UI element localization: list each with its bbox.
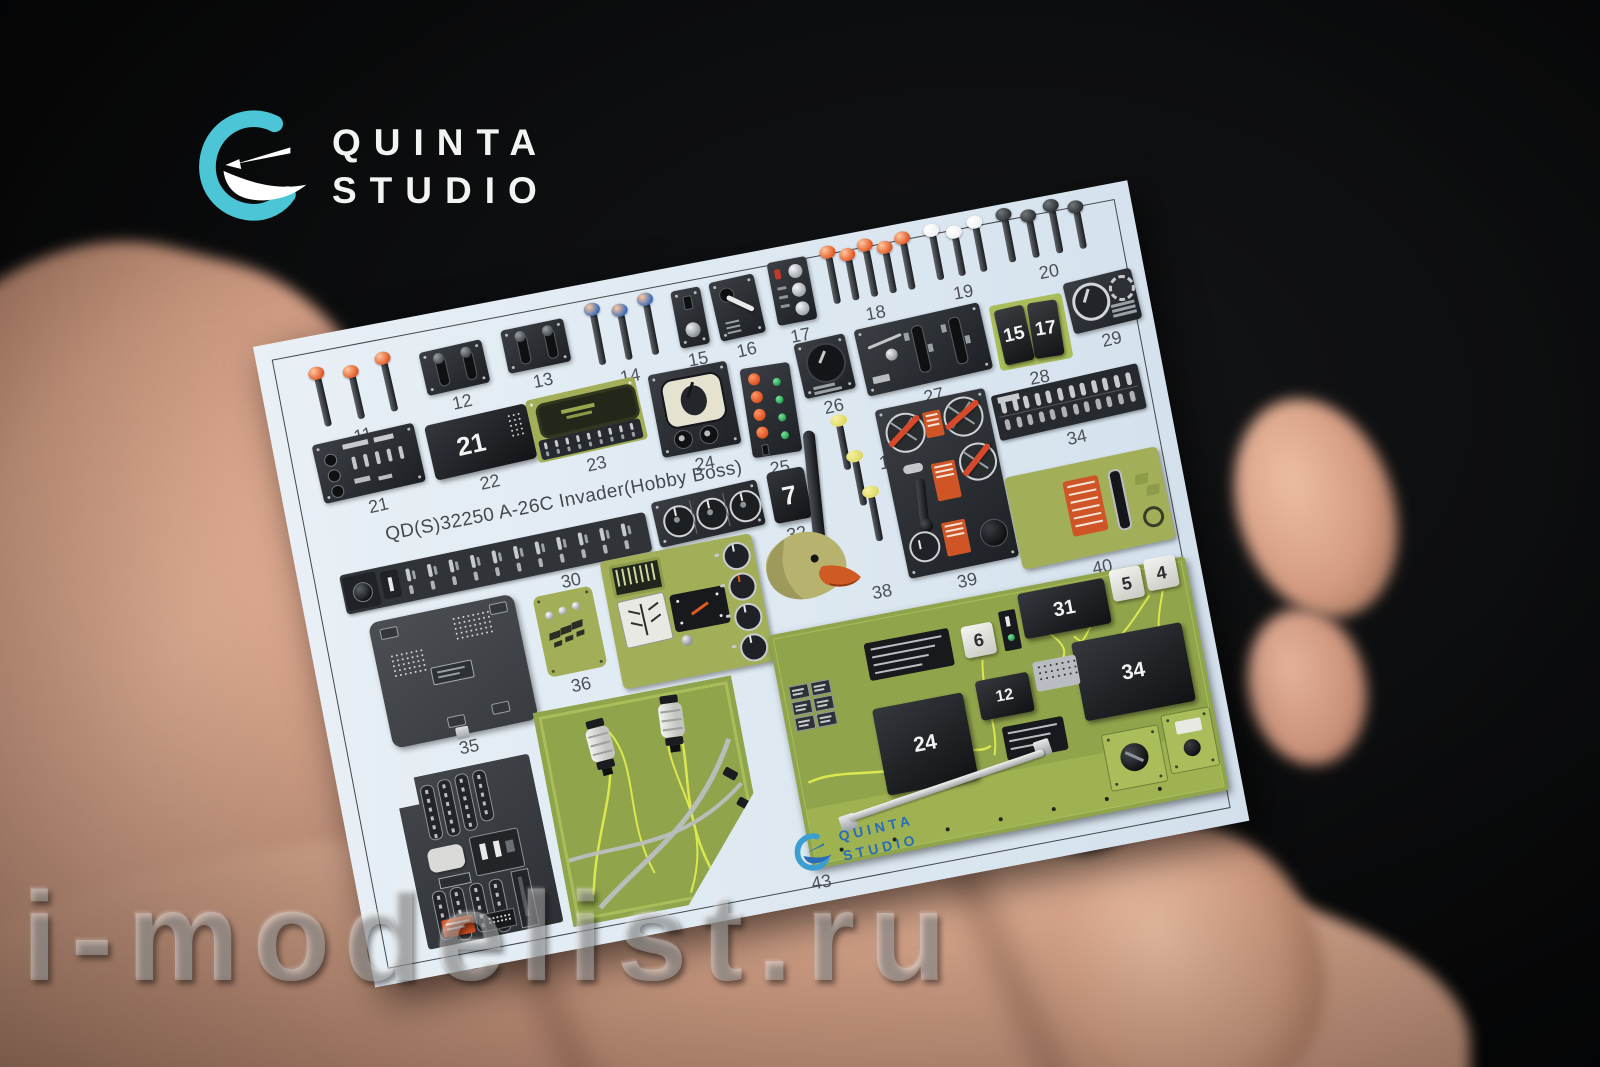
- toggle-pill: [588, 441, 592, 447]
- toggle-pill: [452, 576, 458, 586]
- spool-ridge: [661, 718, 681, 722]
- toggle-pill: [470, 555, 477, 569]
- screw-dot: [1175, 765, 1179, 769]
- toggle-pill: [1027, 414, 1034, 426]
- toggle-pill: [374, 451, 381, 465]
- screw-dot: [758, 518, 762, 522]
- toggle-pill: [513, 546, 520, 560]
- lever-stem: [972, 226, 987, 272]
- toggle-pill: [1023, 395, 1031, 409]
- grille-slat: [645, 564, 650, 581]
- lever-stem: [929, 234, 944, 280]
- screw-dot: [551, 670, 555, 674]
- toggle-pill: [627, 525, 632, 534]
- lever-cap: [636, 291, 654, 307]
- lever-cap: [875, 240, 893, 256]
- watermark-text: i-modelist.ru: [22, 864, 1582, 1009]
- mini-toggle: [761, 444, 770, 456]
- placard-line: [798, 719, 810, 723]
- screw-dot: [663, 540, 667, 544]
- toggle-pill: [631, 431, 635, 437]
- screw-dot: [750, 484, 754, 488]
- orange-placard: [1062, 475, 1109, 537]
- tree-branch: [651, 613, 662, 622]
- toggle-pill: [519, 548, 524, 557]
- screw-dot: [505, 333, 509, 337]
- lever-cap: [1042, 198, 1060, 214]
- quinta-studio-logo: QUINTA STUDIO: [196, 108, 550, 226]
- screw-dot: [798, 347, 802, 351]
- red-toggle: [774, 269, 782, 280]
- dark-glyph: [561, 624, 572, 635]
- orange-placard: [922, 409, 945, 438]
- screw-dot: [684, 341, 688, 345]
- screw-dot: [475, 344, 479, 348]
- toggle-pill: [433, 566, 438, 575]
- toggle-pill: [577, 532, 584, 546]
- placard-line: [437, 666, 465, 674]
- toggle-pill: [620, 523, 627, 537]
- part-32: 732: [766, 466, 813, 524]
- toggle-pill: [576, 435, 580, 442]
- lever-stem: [845, 258, 860, 301]
- spool-body: [657, 702, 685, 739]
- screw-dot: [724, 334, 728, 338]
- grille-slat: [621, 569, 626, 586]
- lever-stem: [882, 251, 897, 294]
- wire-silver: [867, 333, 901, 350]
- toggle-pill: [1038, 411, 1045, 423]
- silver-button: [787, 263, 803, 279]
- toggle-pill: [1015, 416, 1022, 428]
- toggle-pill: [621, 434, 625, 440]
- screw-dot: [675, 294, 679, 298]
- screw-dot: [557, 323, 561, 327]
- screw-dot: [1011, 550, 1015, 554]
- placard-dash: [427, 799, 431, 804]
- screw-dot: [666, 450, 670, 454]
- placard-bar: [354, 475, 371, 483]
- placard-line: [792, 688, 804, 692]
- tick-dot: [680, 621, 684, 625]
- screw-dot: [652, 378, 656, 382]
- placard-line: [817, 704, 827, 707]
- spool-ridge: [590, 740, 610, 747]
- gauge-face: [802, 339, 850, 387]
- screw-dot: [693, 291, 697, 295]
- green-light: [1007, 633, 1015, 641]
- tree-branch: [631, 622, 643, 626]
- screw-dot: [1107, 738, 1111, 742]
- toggle-pill: [1056, 387, 1064, 401]
- toggle-pill: [427, 564, 434, 578]
- part-18: 18: [816, 230, 918, 308]
- placard-line: [1067, 481, 1095, 489]
- white-lever: [726, 295, 755, 312]
- lever-cap: [965, 214, 983, 230]
- knob-box: [342, 571, 382, 611]
- toggle-pill: [516, 562, 522, 572]
- placard-dash: [484, 810, 488, 815]
- screw-dot: [838, 338, 842, 342]
- toggle-pill: [1000, 400, 1008, 414]
- screw-dot: [972, 307, 976, 311]
- lever-stem: [1073, 211, 1087, 250]
- mini-plate: [488, 601, 508, 615]
- toggle-pill: [605, 530, 610, 539]
- toggle-pill: [1045, 390, 1053, 404]
- screw-dot: [1211, 758, 1215, 762]
- toggle-pill: [567, 446, 571, 452]
- part-20: 20: [992, 194, 1089, 267]
- lever-cap: [893, 230, 911, 246]
- screw-dot: [879, 413, 883, 417]
- placard-dash: [448, 811, 452, 816]
- toggle-pill: [1072, 403, 1079, 415]
- placard-line: [936, 473, 954, 478]
- toggle-pill: [597, 430, 601, 437]
- toggle-pill: [1004, 419, 1011, 431]
- tick-dot: [719, 614, 723, 618]
- toggle-pill: [1124, 372, 1132, 386]
- placard-dash: [467, 814, 471, 819]
- green-light: [778, 413, 787, 422]
- screw-dot: [985, 362, 989, 366]
- toggle-pill: [565, 437, 569, 444]
- silver-dot: [558, 606, 567, 615]
- part-28: 151728: [988, 293, 1073, 372]
- placard-dash: [434, 834, 438, 839]
- toggle-pill: [386, 448, 393, 462]
- part-26: 26: [793, 333, 856, 399]
- toggle-pill: [1106, 396, 1113, 408]
- part-16: 16: [708, 273, 766, 342]
- placard-line: [795, 704, 807, 708]
- key-number: 4: [1143, 554, 1180, 591]
- toggle-pill: [619, 425, 623, 432]
- part-12: 12: [418, 339, 490, 396]
- part-38: 38: [749, 518, 867, 620]
- placard-line: [799, 724, 809, 727]
- toggle-pill: [599, 439, 603, 445]
- lever-stem: [825, 256, 841, 304]
- orange-placard: [941, 519, 971, 557]
- part-15: 15: [670, 286, 710, 349]
- side-tab: [964, 335, 971, 344]
- screw-dot: [912, 571, 916, 575]
- round-knob: [977, 516, 1010, 549]
- part-36: 36: [532, 585, 608, 678]
- placard-line: [438, 672, 460, 678]
- toggle-pill: [351, 456, 358, 470]
- green-tab: [1147, 483, 1160, 496]
- toggle-pill: [1090, 380, 1098, 394]
- toggle-pill: [1079, 382, 1087, 396]
- screw-dot: [720, 365, 724, 369]
- placard-dash: [477, 775, 481, 780]
- placard-dash: [442, 784, 446, 789]
- t-handle: [916, 478, 929, 523]
- dark-glyph: [565, 635, 573, 643]
- toggle-pill: [581, 549, 587, 559]
- grille-slat: [615, 570, 620, 587]
- grille-slat: [633, 566, 638, 583]
- placard-bar: [781, 304, 790, 309]
- toggle-pill: [629, 423, 633, 430]
- toggle-pill: [608, 428, 612, 435]
- silver-button: [794, 300, 810, 316]
- screw-dot: [511, 366, 515, 370]
- toggle-pill: [476, 557, 481, 566]
- spool-ridge: [663, 727, 683, 731]
- screw-dot: [733, 437, 737, 441]
- screw-dot: [808, 391, 812, 395]
- placard-bar: [342, 439, 368, 450]
- lever-cap: [341, 363, 359, 379]
- toggle-pill: [556, 537, 563, 551]
- lever-stem: [643, 303, 660, 355]
- placard-bar: [872, 374, 890, 385]
- toggle-pill: [409, 585, 415, 595]
- placard-line: [1074, 512, 1102, 520]
- mini-toggle: [682, 295, 693, 310]
- brand-wordmark: QUINTA STUDIO: [332, 119, 550, 215]
- toggle-pill: [491, 550, 498, 564]
- lever-stem: [314, 377, 332, 427]
- placard-dash: [449, 819, 453, 824]
- knob: [326, 468, 342, 484]
- toggle-pill: [599, 528, 606, 542]
- key-number: 5: [1108, 565, 1145, 602]
- black-knob: [1182, 738, 1202, 758]
- lever-stem: [1026, 220, 1040, 259]
- toggle-pill: [448, 559, 455, 573]
- placard-line: [820, 719, 830, 722]
- placard-line: [925, 413, 937, 417]
- screw-dot: [702, 337, 706, 341]
- placard-dash: [446, 802, 450, 807]
- toggle-pill: [1117, 393, 1124, 405]
- green-light: [775, 395, 784, 404]
- mini-plate: [379, 626, 399, 640]
- gauge-center: [678, 383, 709, 417]
- placard-bar: [777, 286, 786, 291]
- dial-face: [732, 601, 765, 634]
- placard-dash: [469, 823, 473, 828]
- placard-line: [875, 663, 923, 674]
- part-13: 13: [500, 318, 572, 374]
- toggle-pill: [554, 440, 558, 447]
- toggle-pill: [584, 534, 589, 543]
- white-switch: [493, 840, 502, 857]
- lever-stem: [349, 375, 366, 419]
- toggle-pill: [731, 645, 736, 649]
- placard-line: [945, 527, 963, 532]
- toggle-pill: [1068, 385, 1076, 399]
- part-label-38: 38: [870, 580, 894, 604]
- placard-line: [816, 699, 828, 703]
- placard-dash: [451, 828, 455, 833]
- silver-ball: [885, 347, 899, 361]
- orange-button: [755, 426, 769, 440]
- toggle-pill: [610, 436, 614, 442]
- part-35: 35: [368, 593, 539, 749]
- lever-cap: [945, 224, 963, 240]
- orange-button: [750, 390, 764, 404]
- screw-dot: [871, 388, 875, 392]
- lever-cap: [373, 350, 391, 366]
- placard-dash: [459, 778, 463, 783]
- lever-cap: [583, 301, 601, 317]
- placard-line: [1070, 496, 1098, 504]
- dial-face: [720, 540, 753, 573]
- screw-dot: [655, 506, 659, 510]
- knob: [323, 452, 339, 468]
- placard-line: [813, 684, 825, 688]
- lever-cap: [307, 365, 325, 381]
- silver-button: [791, 281, 807, 297]
- spool-plug: [670, 744, 681, 752]
- white-placard: [1175, 717, 1203, 735]
- duck-head-grip-graphic: [749, 518, 867, 620]
- placard-line: [935, 468, 953, 473]
- toggle-pill: [1034, 393, 1042, 407]
- placard-dash: [461, 787, 465, 792]
- lever-cap: [922, 222, 940, 238]
- screw-dot: [1159, 774, 1163, 778]
- spool-ridge: [660, 709, 680, 713]
- toggle-pill: [538, 558, 544, 568]
- lever-stem: [900, 242, 916, 290]
- lever-stem: [1049, 209, 1064, 254]
- sub-panel: [1101, 724, 1169, 792]
- screw-dot: [978, 393, 982, 397]
- screw-dot: [418, 475, 422, 479]
- toggle-pill: [430, 580, 436, 590]
- lever-cap: [829, 413, 848, 428]
- part-label-16: 16: [722, 335, 772, 366]
- screw-dot: [537, 600, 541, 604]
- toggle-pill: [562, 539, 567, 548]
- lever-stem: [952, 236, 966, 277]
- side-tab: [940, 324, 947, 333]
- silver-dot: [571, 601, 580, 610]
- screw-dot: [858, 333, 862, 337]
- placard-bar: [378, 474, 393, 481]
- white-placard: [616, 592, 673, 649]
- placard-line: [934, 463, 952, 468]
- dark-glyph: [549, 630, 560, 641]
- placard-dash: [432, 825, 436, 830]
- lever-cap: [856, 237, 874, 253]
- silver-knob: [684, 321, 702, 339]
- white-switch: [479, 843, 488, 860]
- screw-dot: [585, 590, 589, 594]
- placard-dash: [444, 793, 448, 798]
- lever-stem: [852, 459, 867, 505]
- placard-bar: [779, 295, 788, 300]
- grille-slat: [627, 567, 632, 584]
- grille-slat: [651, 563, 656, 580]
- placard-dash: [479, 784, 483, 789]
- placard-bar: [373, 433, 394, 442]
- part-24: 24: [647, 361, 741, 459]
- equipment-number: 7: [766, 466, 813, 524]
- placard-line: [1075, 520, 1103, 528]
- key-6: 6: [960, 621, 997, 658]
- toggle-pill: [405, 568, 412, 582]
- key-number: 6: [960, 621, 997, 658]
- photo-scene: QUINTA STUDIO QD(S)32250 A-26C Invader(H…: [0, 0, 1600, 1067]
- green-tab: [1135, 472, 1148, 485]
- screw-dot: [1151, 730, 1155, 734]
- tick-dot: [676, 600, 680, 604]
- placard-dash: [481, 792, 485, 797]
- white-switch: [388, 577, 395, 592]
- placard-line: [928, 423, 940, 427]
- orange-button: [753, 408, 767, 422]
- screw-dot: [758, 326, 762, 330]
- orange-needle: [691, 601, 709, 615]
- lever-stem: [868, 495, 883, 541]
- quinta-swirl-icon: [196, 108, 314, 226]
- mini-plate: [491, 701, 511, 715]
- toggle-pill: [498, 552, 503, 561]
- placard-dash: [465, 805, 469, 810]
- brand-line1: QUINTA: [332, 119, 550, 167]
- part-19: 19: [920, 215, 990, 285]
- toggle-pill: [1129, 391, 1136, 403]
- knob: [330, 484, 346, 500]
- placard-line: [819, 715, 831, 719]
- screw-dot: [1166, 719, 1170, 723]
- dark-slot: [1107, 468, 1133, 532]
- placard-line: [814, 688, 824, 691]
- toggle-pill: [495, 567, 501, 577]
- green-light: [772, 377, 781, 386]
- toggle-pill: [546, 451, 550, 457]
- placard-line: [796, 708, 806, 711]
- toggle-pill: [455, 561, 460, 570]
- center-placard: [430, 659, 475, 685]
- lever-cap: [1019, 208, 1037, 224]
- screw-dot: [713, 286, 717, 290]
- dial-face: [726, 570, 759, 603]
- ring: [1141, 504, 1166, 529]
- screw-dot: [316, 448, 320, 452]
- lever-stem: [381, 362, 399, 412]
- part-17: 17: [766, 256, 817, 326]
- toggle-pill: [1095, 398, 1102, 410]
- lever-stem: [863, 249, 879, 297]
- tree-branch: [628, 610, 640, 614]
- screw-dot: [599, 660, 603, 664]
- toggle-pill: [578, 444, 582, 450]
- lever-stem: [617, 314, 632, 360]
- screw-dot: [423, 356, 427, 360]
- placard-line: [793, 692, 803, 695]
- part-14: 14: [581, 292, 662, 370]
- lever-stem: [590, 313, 607, 365]
- screw-dot: [482, 376, 486, 380]
- toggle-pill: [624, 540, 630, 550]
- spool-ridge: [588, 732, 608, 739]
- placard-line: [1069, 488, 1097, 496]
- dark-glyph: [572, 619, 583, 630]
- lever-cap: [838, 247, 856, 263]
- lever-cap: [1066, 199, 1084, 215]
- green-light: [780, 431, 789, 440]
